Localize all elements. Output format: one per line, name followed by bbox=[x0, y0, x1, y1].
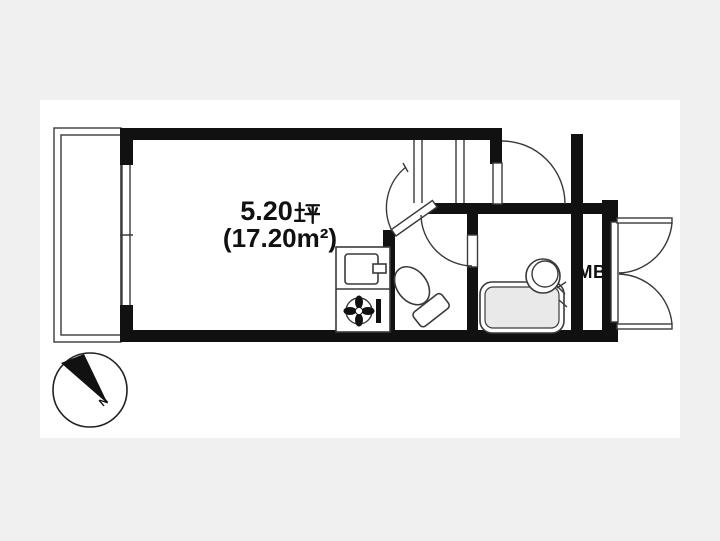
entry-door bbox=[493, 141, 565, 204]
double-doors bbox=[617, 218, 672, 329]
area-tsubo-value: 5.20 bbox=[240, 197, 293, 225]
compass bbox=[53, 353, 127, 427]
meter-box-label: MB bbox=[572, 262, 612, 283]
kitchen-unit bbox=[336, 247, 390, 332]
balcony bbox=[54, 128, 121, 342]
area-label: 5.20 (17.20m²) bbox=[175, 197, 385, 253]
floor-plan-page: 5.20 (17.20m²) MB N bbox=[0, 0, 720, 541]
sliding-window bbox=[120, 165, 133, 305]
diagonal-door bbox=[386, 163, 437, 236]
tsubo-character bbox=[294, 199, 320, 225]
bathroom-door-arc bbox=[421, 215, 472, 266]
area-square-meters: (17.20m²) bbox=[175, 225, 385, 252]
area-tsubo: 5.20 bbox=[175, 197, 385, 225]
wash-basin bbox=[526, 259, 565, 294]
